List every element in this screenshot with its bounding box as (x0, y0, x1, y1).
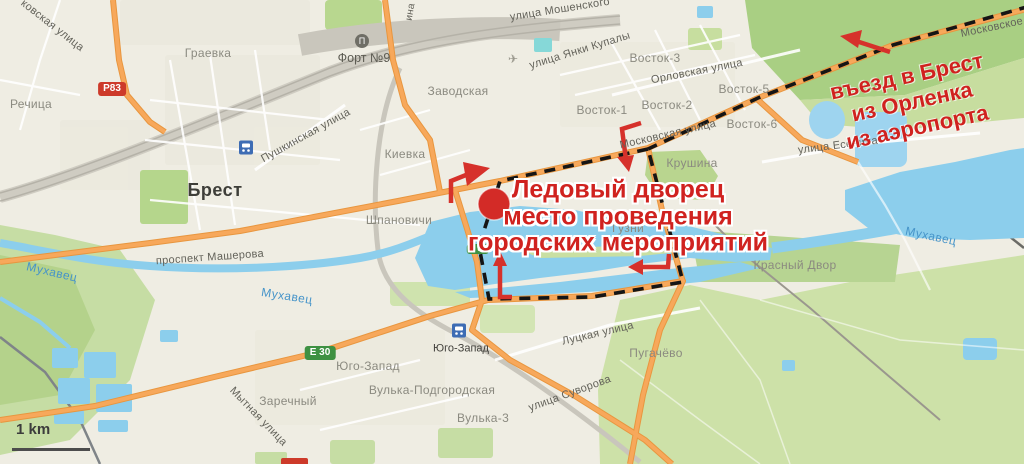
district-label-vostok-1: Восток-1 (576, 104, 627, 116)
annotation-venue-line3: городских мероприятий (468, 229, 768, 256)
annotation-venue-line1: Ледовый дворец (468, 176, 768, 203)
district-label-yugo-zapad: Юго-Запад (336, 360, 400, 372)
district-label-zarechny: Заречный (259, 395, 316, 407)
district-label-krasny-dvor: Красный Двор (754, 259, 837, 271)
district-label-shpanovichi: Шпановичи (366, 214, 432, 226)
scale-label: 1 km (16, 421, 50, 438)
district-label-krushina: Крушина (666, 157, 717, 169)
district-label-vulka-3: Вулька-3 (457, 412, 509, 424)
museum-icon: Π (355, 34, 369, 48)
district-label-vostok-5: Восток-5 (718, 83, 769, 95)
annotation-venue: Ледовый дворец место проведения городски… (468, 176, 768, 256)
arrow-down-head (617, 155, 634, 172)
map-canvas[interactable]: Граевка Речица Киевка Шпановичи Заводска… (0, 0, 1024, 464)
district-label-vostok-6: Восток-6 (726, 118, 777, 130)
train-station-icon (239, 141, 253, 160)
district-label-vulka-podgorodskaya: Вулька-Подгородская (369, 384, 495, 396)
city-label-brest: Брест (187, 181, 242, 199)
district-label-pugachevo: Пугачёво (629, 347, 682, 359)
district-label-rechitsa: Речица (10, 98, 52, 110)
district-label-vostok-2: Восток-2 (641, 99, 692, 111)
district-label-graevka: Граевка (185, 47, 232, 59)
road-badge-p83: Р83 (98, 82, 126, 96)
scale-bar (12, 448, 90, 451)
road-badge-e30: Е 30 (305, 346, 336, 360)
poi-label-fort-9: Форт №9 (338, 52, 391, 65)
train-station-icon (452, 324, 466, 343)
road-badge-cut (281, 458, 308, 464)
district-label-kievka: Киевка (385, 148, 426, 160)
station-label-yugo-zapad: Юго-Запад (433, 344, 489, 355)
district-label-zavodskaya: Заводская (428, 85, 489, 97)
annotation-venue-line2: место проведения (468, 203, 768, 230)
airplane-icon: ✈ (508, 52, 518, 66)
district-label-vostok-3: Восток-3 (629, 52, 680, 64)
